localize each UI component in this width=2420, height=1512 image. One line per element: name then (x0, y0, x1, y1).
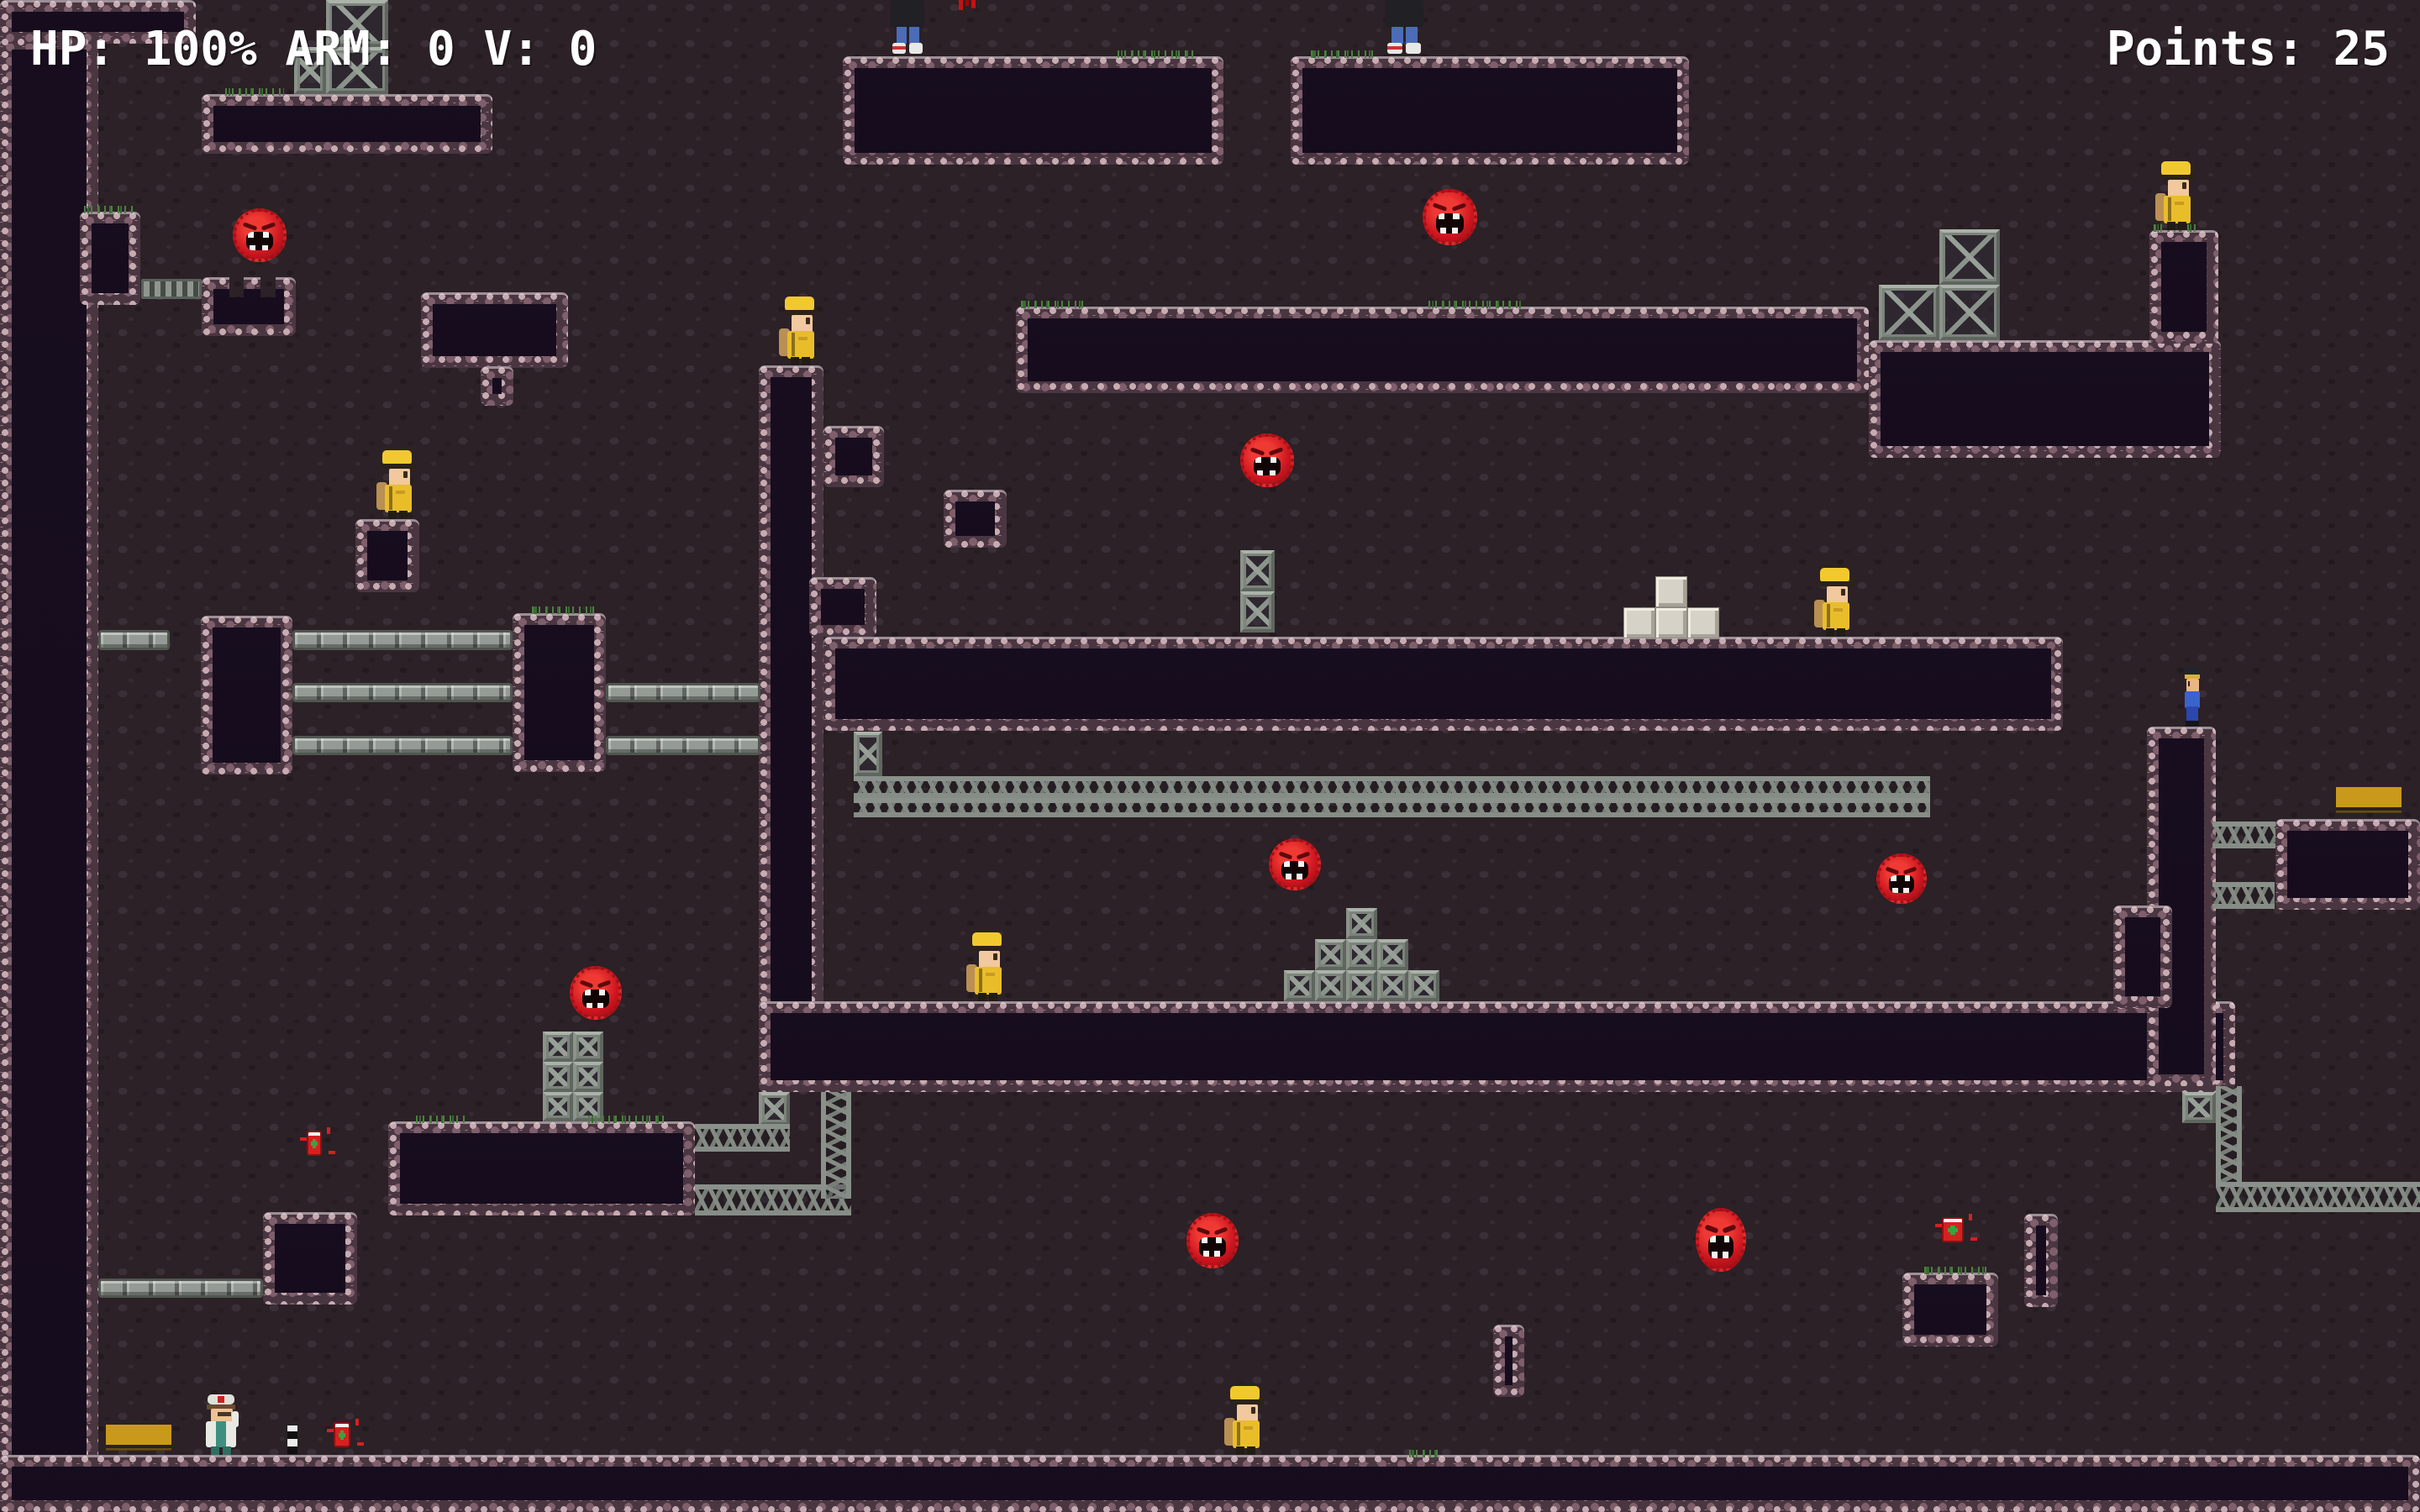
enemy-tooth (1891, 875, 1897, 880)
npc-miner[interactable] (376, 450, 418, 519)
cave-platform (809, 577, 876, 637)
enemy-blob[interactable] (1423, 189, 1477, 245)
sprite-part (2185, 691, 2199, 708)
cave-platform (421, 292, 568, 368)
sprite-part (892, 46, 906, 50)
enemy-mouth (1889, 875, 1914, 893)
sprite-part (979, 969, 982, 992)
grass-tuft (84, 206, 134, 213)
grass-tuft (1428, 301, 1521, 308)
potion-sparkle (355, 1419, 359, 1425)
potion-cross (339, 1433, 346, 1436)
truss-crate (1240, 591, 1275, 633)
sprite-part (1833, 608, 1844, 612)
sprite-part (798, 337, 808, 340)
health-potion[interactable] (1942, 1217, 1964, 1242)
cave-platform (80, 212, 140, 305)
truss-beam (2212, 822, 2275, 848)
hud-stats-text: HP: 100% ARM: 0 V: 0 (30, 22, 597, 76)
sprite-part (1826, 628, 1834, 637)
enemy-mouth (246, 232, 273, 250)
sprite-part (218, 1412, 231, 1416)
sprite-part (897, 27, 907, 44)
grass-tuft (1409, 1450, 1443, 1457)
npc-miner[interactable] (779, 297, 820, 365)
cave-platform (1291, 56, 1689, 165)
platform-notch (229, 277, 244, 297)
enemy-blob[interactable] (1696, 1208, 1746, 1272)
enemy-eye (1278, 851, 1292, 859)
enemy-tooth (1203, 1251, 1209, 1257)
enemy-tooth (1453, 213, 1459, 219)
sprite-part (389, 486, 392, 510)
enemy-tooth (1202, 1237, 1207, 1243)
cave-platform (823, 637, 2063, 731)
enemy-tooth (1216, 1237, 1222, 1243)
sprite-part (909, 27, 919, 44)
truss-beam (695, 1124, 790, 1152)
cave-platform (1493, 1325, 1524, 1397)
truss-crate (1346, 970, 1377, 1001)
sprite-part (1387, 46, 1402, 50)
sprite-part (978, 993, 986, 1001)
sprite-part (216, 1421, 226, 1446)
sprite-part (1841, 589, 1844, 595)
potion-cross (311, 1142, 318, 1145)
gold-planks[interactable] (2336, 787, 2402, 814)
sprite-part (792, 333, 795, 356)
cave-platform (823, 426, 884, 487)
marble-block (1687, 607, 1719, 638)
cave-platform (843, 56, 1223, 165)
truss-crate (1939, 285, 2000, 340)
sprite-part (993, 953, 997, 959)
sprite-part (223, 1446, 231, 1455)
truss-crate (543, 1092, 573, 1121)
sprite-part (806, 318, 809, 323)
cave-platform (481, 366, 513, 406)
sprite-part (2168, 197, 2171, 221)
cave-platform (388, 1121, 695, 1215)
grass-tuft (225, 88, 284, 96)
enemy-eye (1249, 447, 1265, 455)
truss-crate (1346, 939, 1377, 970)
sprite-part (1385, 0, 1423, 28)
npc-miner[interactable] (1224, 1386, 1265, 1455)
enemy-tooth (1723, 1252, 1728, 1258)
truss-crate (1346, 908, 1377, 939)
sprite-part (791, 357, 799, 365)
metal-pipe (292, 630, 513, 650)
grass-tuft (1311, 50, 1378, 58)
enemy-blob[interactable] (570, 966, 622, 1020)
enemy-blob[interactable] (233, 208, 287, 262)
potion-sparkle (300, 1137, 307, 1141)
truss-crate (1377, 970, 1408, 1001)
sprite-part (218, 1396, 224, 1403)
enemy-tooth (599, 990, 605, 995)
sprite-part (2178, 222, 2186, 230)
truss-crate (759, 1092, 790, 1126)
enemy-mouth (1708, 1236, 1733, 1258)
sprite-part (986, 973, 996, 976)
enemy-tooth (1257, 470, 1263, 476)
sprite-part (388, 511, 397, 519)
sprite-part (2167, 222, 2175, 230)
enemy-mouth (1199, 1237, 1225, 1257)
truss-column (2216, 1086, 2242, 1182)
sprite-part (1837, 628, 1845, 637)
truss-beam (2216, 1182, 2420, 1212)
sprite-part (1406, 43, 1421, 54)
sprite-part (2182, 182, 2186, 188)
truss-crate (1377, 939, 1408, 970)
gold-planks[interactable] (106, 1425, 171, 1452)
cave-platform (2275, 819, 2420, 910)
marble-block (1655, 607, 1687, 638)
sprite-part (1244, 1426, 1254, 1430)
enemy-eye (1723, 1224, 1737, 1233)
enemy-tooth (1255, 457, 1261, 463)
enemy-tooth (1892, 888, 1898, 893)
enemy-tooth (587, 1003, 592, 1009)
potion-sparkle (329, 1151, 335, 1154)
potion-cross (1948, 1228, 1958, 1231)
striped-pole (287, 1425, 298, 1455)
grass-tuft (588, 1116, 664, 1123)
enemy-tooth (248, 232, 254, 238)
enemy-tooth (250, 245, 255, 251)
potion-sparkle (327, 1429, 334, 1432)
metal-pipe (98, 1278, 263, 1298)
grass-tuft (1924, 1267, 1991, 1274)
enemy-tooth (262, 245, 268, 251)
cave-platform (2024, 1214, 2058, 1307)
game-world (0, 0, 2420, 1512)
enemy-eye (1451, 203, 1466, 213)
cave-platform (202, 94, 492, 154)
cave-platform (202, 277, 296, 336)
sprite-part (1237, 1422, 1240, 1446)
truss-crate (573, 1062, 603, 1092)
enemy-eye (1196, 1226, 1210, 1235)
sprite-part (232, 1411, 239, 1427)
truss-beam (2212, 882, 2275, 909)
metal-pipe (606, 683, 760, 702)
sprite-part (1251, 1407, 1255, 1413)
sprite-part (2186, 721, 2199, 727)
truss-crate (573, 1032, 603, 1062)
truss-crate (1284, 970, 1315, 1001)
enemy-tooth (1286, 874, 1292, 879)
health-potion[interactable] (307, 1131, 322, 1156)
enemy-eye (597, 979, 612, 988)
enemy-eye (1214, 1226, 1228, 1235)
enemy-mouth (1436, 213, 1464, 234)
sprite-part (802, 357, 810, 365)
grass-tuft (532, 606, 599, 614)
sprite-part (989, 993, 997, 1001)
health-potion[interactable] (334, 1422, 350, 1447)
npc-civilian[interactable] (1385, 0, 1423, 54)
truss-crate (1939, 229, 2000, 285)
cave-platform (201, 616, 292, 774)
enemy-tooth (1452, 228, 1458, 234)
truss-crate (543, 1032, 573, 1062)
enemy-tooth (1905, 875, 1911, 880)
marble-block (1623, 607, 1655, 638)
cave-platform (355, 519, 419, 592)
enemy-tooth (1724, 1236, 1730, 1242)
enemy-mouth (1254, 457, 1281, 475)
ribbed-rail (141, 279, 202, 299)
potion-sparkle (1970, 1237, 1977, 1241)
npc-cop[interactable] (2182, 668, 2202, 727)
sprite-part (403, 471, 407, 477)
cave-platform (513, 613, 606, 772)
enemy-blob[interactable] (1186, 1213, 1239, 1268)
enemy-eye (1903, 866, 1917, 874)
enemy-tooth (1439, 213, 1444, 219)
enemy-tooth (1297, 874, 1302, 879)
potion-sparkle (357, 1442, 364, 1446)
truss-crate (1879, 285, 1939, 340)
truss-crate (2182, 1092, 2216, 1123)
cave-platform (759, 1001, 2235, 1092)
enemy-tooth (1710, 1236, 1716, 1242)
cave-platform (263, 1212, 357, 1305)
npc-civilian[interactable] (891, 0, 924, 54)
enemy-tooth (597, 1003, 603, 1009)
grass-tuft (1118, 50, 1193, 58)
sprite-part (396, 491, 406, 494)
truss-crate (543, 1062, 573, 1092)
sprite-part (211, 1446, 219, 1455)
enemy-blob[interactable] (1240, 433, 1294, 487)
enemy-eye (1705, 1224, 1719, 1233)
cave-platform (944, 490, 1007, 548)
enemy-blob[interactable] (1876, 853, 1927, 904)
sprite-part (1247, 1446, 1255, 1455)
truss-beam (854, 798, 1930, 817)
metal-pipe (292, 683, 513, 702)
sprite-part (891, 0, 924, 28)
platform-notch (260, 277, 276, 297)
potion-sparkle (327, 1127, 330, 1134)
enemy-tooth (263, 232, 269, 238)
sprite-part (1391, 27, 1403, 44)
sprite-part (2188, 681, 2190, 686)
enemy-tooth (1270, 470, 1276, 476)
blood-drips (958, 0, 976, 10)
sprite-part (1236, 1446, 1244, 1455)
marble-block (1655, 576, 1687, 607)
npc-miner[interactable] (2155, 161, 2196, 230)
npc-miner[interactable] (1814, 568, 1855, 637)
cave-platform (2149, 230, 2218, 344)
cave-platform (1016, 307, 1869, 393)
cave-platform (759, 365, 823, 1092)
truss-column (821, 1092, 851, 1199)
npc-miner[interactable] (966, 932, 1007, 1001)
enemy-tooth (585, 990, 591, 995)
cave-platform (1869, 340, 2221, 458)
enemy-eye (1269, 447, 1284, 455)
cave-platform (1902, 1273, 1998, 1347)
enemy-tooth (1298, 861, 1304, 866)
enemy-eye (242, 222, 257, 230)
metal-pipe (98, 630, 170, 650)
metal-pipe (606, 736, 760, 755)
enemy-eye (261, 222, 276, 230)
cave-platform (0, 1455, 2420, 1512)
enemy-tooth (1712, 1252, 1718, 1258)
truss-crate (1408, 970, 1439, 1001)
truss-crate (854, 732, 882, 776)
grass-tuft (416, 1116, 466, 1123)
sprite-part (1827, 604, 1830, 627)
enemy-tooth (1440, 228, 1446, 234)
enemy-eye (1886, 866, 1899, 874)
sprite-part (2186, 706, 2198, 722)
metal-pipe (292, 736, 513, 755)
enemy-tooth (1214, 1251, 1220, 1257)
truss-crate (1315, 970, 1346, 1001)
truss-crate (1240, 550, 1275, 591)
cave-platform (2113, 906, 2172, 1008)
sprite-part (2175, 202, 2185, 205)
potion-sparkle (1969, 1214, 1972, 1221)
enemy-mouth (1281, 861, 1307, 879)
enemy-tooth (1903, 888, 1909, 893)
sprite-part (1406, 27, 1418, 44)
enemy-eye (1297, 851, 1311, 859)
enemy-tooth (1270, 457, 1276, 463)
enemy-eye (1433, 203, 1448, 213)
sprite-part (399, 511, 408, 519)
enemy-mouth (582, 990, 608, 1008)
enemy-eye (579, 979, 593, 988)
truss-beam (854, 776, 1930, 798)
truss-crate (1315, 939, 1346, 970)
potion-sparkle (1935, 1224, 1942, 1227)
player-medic[interactable] (202, 1394, 240, 1455)
enemy-blob[interactable] (1269, 838, 1321, 890)
grass-tuft (1021, 301, 1088, 308)
hud-points-text: Points: 25 (2107, 22, 2390, 76)
enemy-tooth (1284, 861, 1290, 866)
sprite-part (909, 43, 923, 54)
